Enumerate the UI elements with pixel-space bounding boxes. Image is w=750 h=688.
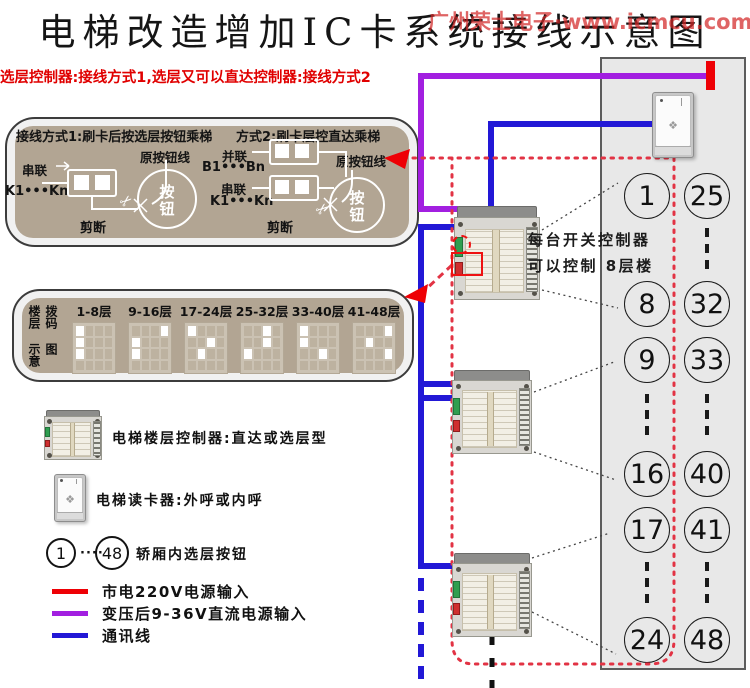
ellipsis-dash (645, 594, 649, 603)
ellipsis-dash (645, 578, 649, 587)
ellipsis-dash (705, 562, 709, 571)
dip-cell (132, 361, 140, 371)
method1-series-range: K1•••Kn (5, 184, 68, 199)
dip-cell (105, 349, 113, 359)
dip-cell (319, 349, 327, 359)
floor-button-40: 40 (684, 451, 730, 497)
dip-cell (300, 361, 308, 371)
floor-button-33: 33 (684, 337, 730, 383)
dip-cell (319, 338, 327, 348)
dip-cell (300, 338, 308, 348)
dip-cell (207, 338, 215, 348)
legend-reader-label: 电梯读卡器:外呼或内呼 (96, 490, 264, 510)
terminal-highlight-circle (452, 235, 471, 254)
method2-title: 方式2:刷卡层控直达乘梯 (236, 126, 380, 145)
screw-icon (456, 629, 461, 634)
dip-highlight-box (451, 252, 483, 276)
dip-cell (244, 361, 252, 371)
dip-group-label: 33-40层 (292, 301, 344, 320)
ellipsis-dash (645, 394, 649, 403)
dip-cell (132, 326, 140, 336)
watermark: 广州荣士电子·www.icmcu.com (428, 6, 750, 36)
dip-cell (329, 326, 337, 336)
line-legend-label: 变压后9-36V直流电源输入 (102, 603, 307, 624)
legend-controller-icon (44, 410, 102, 460)
dip-cell (254, 338, 262, 348)
dip-cell (142, 349, 150, 359)
screw-icon (532, 291, 537, 296)
dip-cell (86, 361, 94, 371)
dip-cell (86, 338, 94, 348)
dip-cell (244, 349, 252, 359)
dip-group-33-40层: 33-40层 (294, 301, 342, 374)
method1-series-label: 串联 (22, 160, 47, 179)
floor-controller-3 (452, 553, 532, 637)
dip-cell (188, 349, 196, 359)
dip-cell (95, 338, 103, 348)
ellipsis-dash (705, 260, 709, 269)
red-dashed-diagonal (424, 265, 452, 291)
floor-button-41: 41 (684, 507, 730, 553)
dip-cell (198, 338, 206, 348)
dip-cell (188, 338, 196, 348)
dip-cell (254, 349, 262, 359)
method2-cut-label: 剪断 (267, 217, 293, 236)
dip-cell (207, 349, 215, 359)
dip-cell (263, 338, 271, 348)
dip-cell (385, 326, 393, 336)
dip-cell (310, 326, 318, 336)
dip-cell (86, 349, 94, 359)
dip-cell (76, 338, 84, 348)
method2-button-label: 按钮 (349, 190, 365, 223)
dip-cell (356, 338, 364, 348)
dip-cell (329, 349, 337, 359)
pcb-label-strip (487, 392, 494, 447)
reader-emblem-icon: ❖ (55, 494, 85, 505)
dip-cell (366, 361, 374, 371)
dip-cell (329, 361, 337, 371)
dip-switch-block (240, 322, 284, 374)
floor-button-8: 8 (624, 281, 670, 327)
line-swatch (52, 633, 88, 638)
dip-cell (132, 349, 140, 359)
dip-cell (375, 326, 383, 336)
reader-slit (76, 479, 77, 485)
dip-group-9-16层: 9-16层 (126, 301, 174, 374)
floor-controller-2 (452, 370, 532, 454)
floor-button-9: 9 (624, 337, 670, 383)
dip-group-17-24层: 17-24层 (182, 301, 230, 374)
dip-cell (385, 349, 393, 359)
dip-cell (151, 349, 159, 359)
legend-reader-icon: ❖ (54, 474, 86, 522)
dip-cell (151, 338, 159, 348)
red-terminal (453, 603, 460, 615)
floor-button-17: 17 (624, 507, 670, 553)
dip-switch-block (296, 322, 340, 374)
floor-button-48: 48 (684, 617, 730, 663)
dip-group-label: 9-16层 (128, 301, 172, 320)
green-terminal (45, 427, 50, 438)
dip-cell (366, 349, 374, 359)
dip-cell (76, 326, 84, 336)
dip-cell (319, 326, 327, 336)
dip-cell (86, 326, 94, 336)
red-terminal (453, 420, 460, 432)
dip-group-label: 1-8层 (76, 301, 111, 320)
method1-cut-label: 剪断 (80, 217, 106, 236)
dip-cell (161, 326, 169, 336)
dip-switch-block (72, 322, 116, 374)
dip-cell (151, 326, 159, 336)
line-legend-row-0: 市电220V电源输入 (52, 583, 307, 600)
diagram-canvas: 电梯改造增加IC卡系统接线示意图 广州荣士电子·www.icmcu.com 选层… (0, 0, 750, 688)
dip-cell (273, 338, 281, 348)
dip-cell (105, 326, 113, 336)
dip-cell (263, 349, 271, 359)
floor-button-32: 32 (684, 281, 730, 327)
ellipsis-dash (705, 410, 709, 419)
dip-cell (76, 361, 84, 371)
dip-cell (142, 338, 150, 348)
reader-emblem-icon: ❖ (653, 120, 693, 131)
dip-switch-block (184, 322, 228, 374)
legend-buttons-label: 轿厢内选层按钮 (136, 544, 248, 564)
ellipsis-dash (645, 562, 649, 571)
dip-cell (375, 338, 383, 348)
floor-button-25: 25 (684, 173, 730, 219)
dip-cell (95, 326, 103, 336)
floor-button-16: 16 (624, 451, 670, 497)
ellipsis-dash (705, 426, 709, 435)
dip-side-label-2: 示意图 (26, 343, 60, 369)
reader-bottom-band (57, 512, 83, 519)
line-swatch (52, 611, 88, 616)
ellipsis-dash (705, 228, 709, 237)
line-legend-label: 市电220V电源输入 (102, 581, 250, 602)
method1-original-line-label: 原按钮线 (140, 147, 190, 166)
line-swatch (52, 589, 88, 594)
floor-button-1: 1 (624, 173, 670, 219)
terminal-pin-strip (519, 388, 530, 446)
dip-cell (188, 326, 196, 336)
dip-cell (254, 326, 262, 336)
dip-cell (217, 326, 225, 336)
dip-group-1-8层: 1-8层 (70, 301, 118, 374)
dip-cell (198, 326, 206, 336)
dip-cell (76, 349, 84, 359)
line-legend-row-2: 通讯线 (52, 627, 307, 644)
pcb-label-strip (492, 230, 500, 291)
dip-cell (161, 361, 169, 371)
green-terminal (453, 581, 460, 599)
terminal-pin-strip (93, 421, 101, 456)
dip-cell (300, 349, 308, 359)
dip-cell (207, 326, 215, 336)
dip-group-label: 25-32层 (236, 301, 288, 320)
dip-cell (356, 361, 364, 371)
dip-cell (217, 349, 225, 359)
reader-slit (681, 98, 682, 106)
ellipsis-dash (705, 578, 709, 587)
controller-note-line1: 每台开关控制器 (528, 229, 651, 250)
controller-note-line2: 可以控制 8层楼 (528, 255, 654, 276)
dip-cell (188, 361, 196, 371)
dip-cell (366, 338, 374, 348)
dip-cell (300, 326, 308, 336)
dip-cell (385, 338, 393, 348)
dip-cell (329, 338, 337, 348)
dip-cell (142, 326, 150, 336)
dip-cell (356, 349, 364, 359)
legend-button-first: 1 (46, 538, 76, 568)
dip-side-label: 楼层拨码 示意图 (26, 305, 60, 369)
ellipsis-dash (705, 244, 709, 253)
dip-group-label: 41-48层 (348, 301, 400, 320)
dip-cell (366, 326, 374, 336)
legend-button-last: 48 (95, 536, 129, 570)
dip-cell (95, 361, 103, 371)
dip-group-25-32层: 25-32层 (238, 301, 286, 374)
dip-cell (142, 361, 150, 371)
line-type-legend: 市电220V电源输入变压后9-36V直流电源输入通讯线 (52, 583, 307, 644)
dip-cell (151, 361, 159, 371)
dip-cell (310, 349, 318, 359)
dip-cell (385, 361, 393, 371)
dip-cell (198, 361, 206, 371)
dip-cell (263, 361, 271, 371)
dip-cell (198, 349, 206, 359)
ellipsis-dash (645, 410, 649, 419)
dip-cell (273, 349, 281, 359)
pcb-label-strip (70, 423, 75, 456)
dip-groups: 1-8层9-16层17-24层25-32层33-40层41-48层 (70, 301, 398, 374)
dip-cell (310, 338, 318, 348)
reader-bottom-band (655, 146, 691, 155)
dip-cell (217, 361, 225, 371)
ellipsis-dash (705, 594, 709, 603)
dip-cell (356, 326, 364, 336)
dip-cell (273, 326, 281, 336)
screw-icon (456, 446, 461, 451)
dip-cell (161, 338, 169, 348)
reader-led (660, 99, 663, 102)
dip-cell (207, 361, 215, 371)
subtitle: 选层控制器:接线方式1,选层又可以直达控制器:接线方式2 (0, 66, 371, 87)
dip-cell (161, 349, 169, 359)
dip-cell (105, 338, 113, 348)
dip-group-41-48层: 41-48层 (350, 301, 398, 374)
dip-cell (132, 338, 140, 348)
dip-cell (319, 361, 327, 371)
dip-cell (263, 326, 271, 336)
line-legend-label: 通讯线 (102, 625, 152, 646)
floor-button-24: 24 (624, 617, 670, 663)
line-legend-row-1: 变压后9-36V直流电源输入 (52, 605, 307, 622)
dip-cell (254, 361, 262, 371)
dip-switch-block (128, 322, 172, 374)
dip-cell (105, 361, 113, 371)
method2-original-line-label: 原按钮线 (336, 151, 386, 170)
dip-cell (273, 361, 281, 371)
dip-cell (310, 361, 318, 371)
method2-series-range: K1•••Kn (210, 194, 273, 209)
terminal-pin-strip (519, 571, 530, 629)
pcb-label-strip (487, 575, 494, 630)
dip-cell (375, 349, 383, 359)
dip-side-label-1: 楼层拨码 (26, 305, 60, 340)
method1-title: 接线方式1:刷卡后按选层按钮乘梯 (16, 126, 212, 145)
card-reader-image: ❖ (652, 92, 694, 158)
method2-parallel-range: B1•••Bn (202, 160, 265, 175)
dip-cell (95, 349, 103, 359)
legend-controller-label: 电梯楼层控制器:直达或选层型 (112, 428, 328, 448)
dip-switch-block (352, 322, 396, 374)
dip-cell (244, 338, 252, 348)
dip-cell (244, 326, 252, 336)
green-terminal (453, 398, 460, 416)
method1-button-label: 按钮 (159, 184, 175, 217)
dip-group-label: 17-24层 (180, 301, 232, 320)
ellipsis-dash (705, 394, 709, 403)
dip-cell (375, 361, 383, 371)
ellipsis-dash (645, 426, 649, 435)
dip-cell (217, 338, 225, 348)
red-terminal (45, 440, 50, 447)
